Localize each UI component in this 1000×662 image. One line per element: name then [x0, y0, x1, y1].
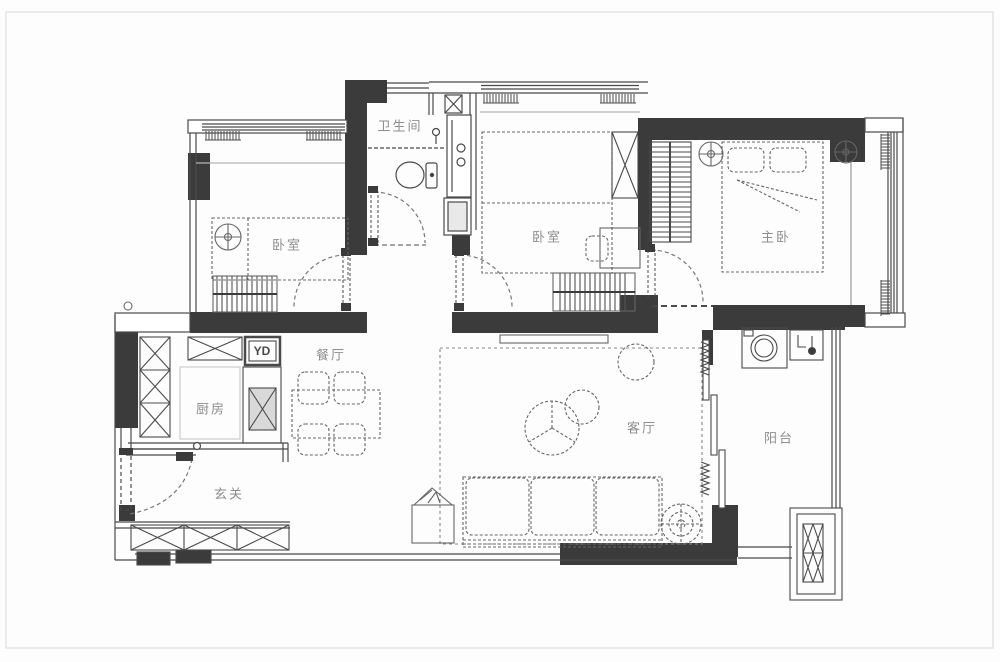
- sliding-door: [701, 340, 725, 508]
- ceiling-fan-icon: [215, 224, 241, 250]
- mop-sink: [790, 330, 823, 360]
- master-wardrobe: [650, 142, 691, 242]
- label-duct: YD: [254, 344, 271, 358]
- door-mat: [137, 552, 170, 565]
- master-furniture: [650, 141, 857, 272]
- bedroom2-furniture: [482, 132, 640, 311]
- dining-chair: [334, 372, 365, 404]
- label-master-bedroom: 主卧: [761, 227, 791, 246]
- coffee-table: [525, 390, 599, 455]
- wall-fan-icon: [835, 141, 857, 163]
- ac-platform: [790, 508, 842, 600]
- label-dining: 餐厅: [316, 345, 346, 364]
- desk-and-chair: [586, 228, 640, 268]
- label-bathroom: 卫生间: [377, 116, 422, 135]
- kitchen-tall-cabinets: [140, 337, 170, 437]
- washing-machine: [742, 328, 787, 368]
- bedroom1-furniture: [212, 218, 348, 312]
- bedroom2-column: [612, 132, 638, 198]
- dining-chair: [298, 424, 329, 455]
- shoe-cabinet: [131, 525, 289, 550]
- kitchen-top-counter: [188, 337, 242, 360]
- dining-set: [292, 372, 380, 455]
- bedroom1-dresser: [213, 276, 277, 312]
- living-room-furniture: [412, 335, 702, 547]
- dining-chair: [298, 372, 329, 404]
- foyer-fixtures: [131, 525, 289, 565]
- dining-chair: [334, 424, 365, 455]
- tv: [500, 335, 608, 343]
- label-bedroom-1: 卧室: [272, 235, 302, 254]
- floor-lamp-icon: [661, 504, 701, 544]
- round-side-table: [618, 344, 654, 380]
- doors: [119, 186, 713, 514]
- ac-unit: [803, 524, 823, 582]
- ceiling-fan-icon: [699, 142, 723, 166]
- kitchen-side-counter: [243, 367, 281, 443]
- label-kitchen: 厨房: [196, 399, 226, 418]
- dining-table: [292, 390, 380, 438]
- label-balcony: 阳台: [764, 428, 794, 447]
- floor-plan-canvas: 卧室 卫生间 卧室 主卧 厨房 餐厅 玄关 客厅 阳台 YD: [0, 0, 1000, 662]
- side-table-lamp: [412, 488, 454, 543]
- label-living: 客厅: [627, 418, 657, 437]
- sofa: [463, 477, 662, 547]
- door-mat: [176, 550, 211, 563]
- master-bed: [722, 142, 823, 272]
- floor-plan-drawing: [0, 0, 1000, 662]
- label-bedroom-2: 卧室: [532, 227, 562, 246]
- label-foyer: 玄关: [214, 484, 244, 503]
